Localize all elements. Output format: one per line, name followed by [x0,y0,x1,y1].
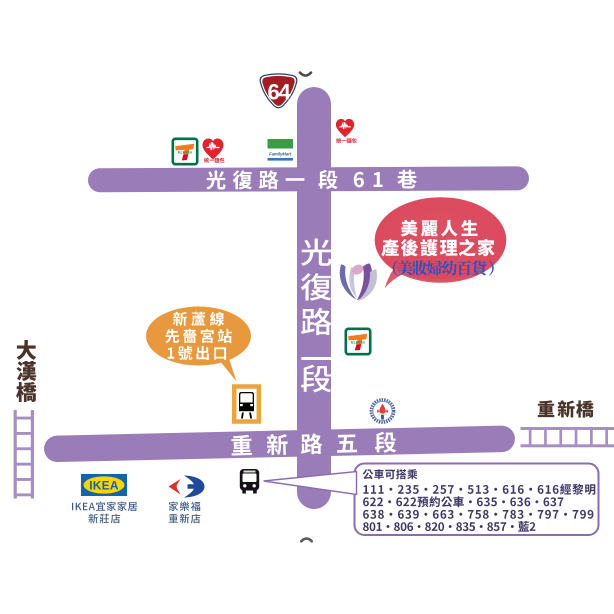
svg-text:IKEA: IKEA [89,478,119,492]
svg-text:ELEVEn: ELEVEn [178,151,192,155]
svg-text:64: 64 [267,80,291,105]
svg-text:FamilyMart: FamilyMart [269,152,292,157]
